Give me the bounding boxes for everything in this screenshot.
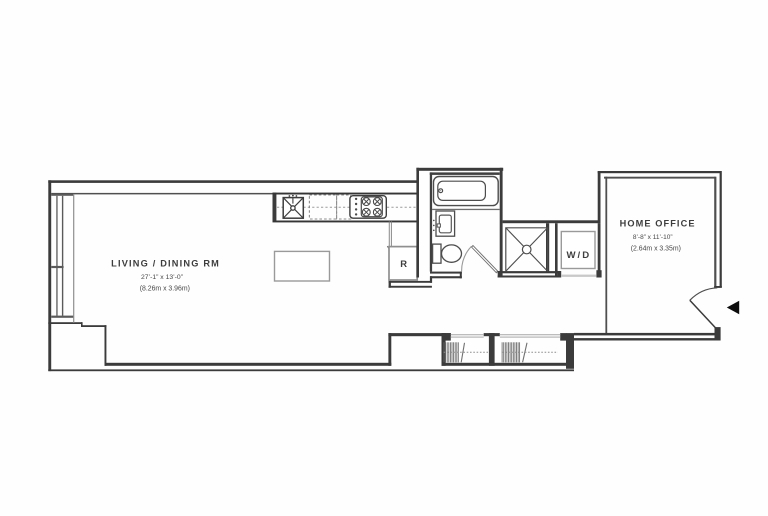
svg-text:(2.64m x 3.35m): (2.64m x 3.35m) [631, 246, 681, 253]
svg-text:(8.26m x 3.96m): (8.26m x 3.96m) [140, 286, 190, 293]
svg-text:LIVING / DINING RM: LIVING / DINING RM [111, 258, 220, 268]
svg-text:8’-8” x 11’-10”: 8’-8” x 11’-10” [633, 234, 673, 241]
svg-text:W/D: W/D [566, 250, 591, 261]
svg-text:27’-1” x 13’-0”: 27’-1” x 13’-0” [141, 274, 184, 281]
svg-text:HOME OFFICE: HOME OFFICE [620, 219, 696, 229]
svg-text:R: R [400, 258, 407, 269]
